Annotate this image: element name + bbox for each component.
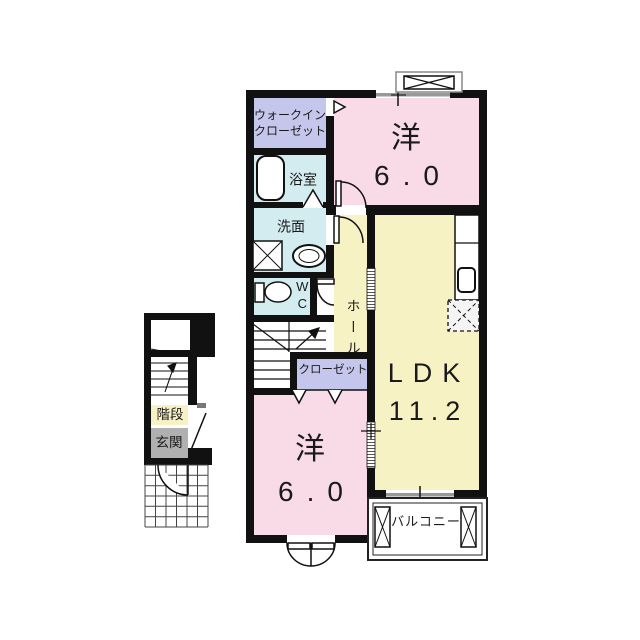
entrance-door — [191, 413, 206, 450]
wall-stairs-bottom — [246, 388, 297, 395]
bedroom-bottom-size: 6.0 — [278, 473, 356, 511]
floor-plan-drawing — [0, 0, 640, 640]
wall-wc-stairs — [246, 315, 334, 322]
porch-door-arc — [158, 465, 188, 495]
ldk-size: 11.2 — [389, 393, 468, 429]
sliding-door-hall-ldk — [367, 268, 375, 310]
kitchen-sink-icon — [458, 268, 475, 292]
wall-closet-left — [290, 352, 297, 390]
hall-label: ホール — [344, 299, 363, 362]
stairs-label: 階段 — [157, 406, 184, 424]
wall-entrance-left — [144, 313, 151, 465]
wall-right — [479, 90, 487, 498]
bath-label: 浴室 — [289, 171, 317, 190]
bathtub-icon — [257, 156, 284, 200]
wall-wash-wc — [246, 272, 334, 278]
wall-entrance-right — [188, 350, 197, 405]
wall-wc-right — [310, 278, 317, 315]
washroom-label: 洗面 — [277, 218, 305, 237]
door-washroom — [334, 216, 339, 243]
bedroom-bottom-name: 洋 — [295, 430, 325, 471]
wall-wic-bath — [246, 148, 334, 155]
toilet-bowl-icon — [265, 282, 291, 302]
toilet-tank-icon — [255, 283, 264, 302]
bedroom-top-name: 洋 — [391, 119, 421, 160]
wall-entrance-bottom — [144, 458, 212, 465]
door-toilet — [317, 279, 334, 284]
floor-plan: ウォークイン クローゼット 浴室 洗面 WC ホール クローゼット 洋 6.0 … — [0, 0, 640, 640]
double-doors-bedroom-bottom — [287, 543, 335, 566]
balcony-label: バルコニー — [391, 513, 461, 531]
wall-center-vertical — [367, 205, 375, 535]
ldk-name: LDK — [388, 355, 471, 391]
door-bedroom-top — [336, 181, 341, 206]
entrance-label: 玄関 — [156, 434, 183, 452]
bedroom-top-size: 6.0 — [374, 157, 452, 195]
window-top — [376, 93, 450, 97]
closet-label: クローゼット — [299, 363, 368, 379]
porch-tiles — [145, 465, 208, 527]
toilet-label: WC — [293, 279, 311, 313]
walkin-closet-label: ウォークイン クローゼット — [254, 107, 326, 139]
